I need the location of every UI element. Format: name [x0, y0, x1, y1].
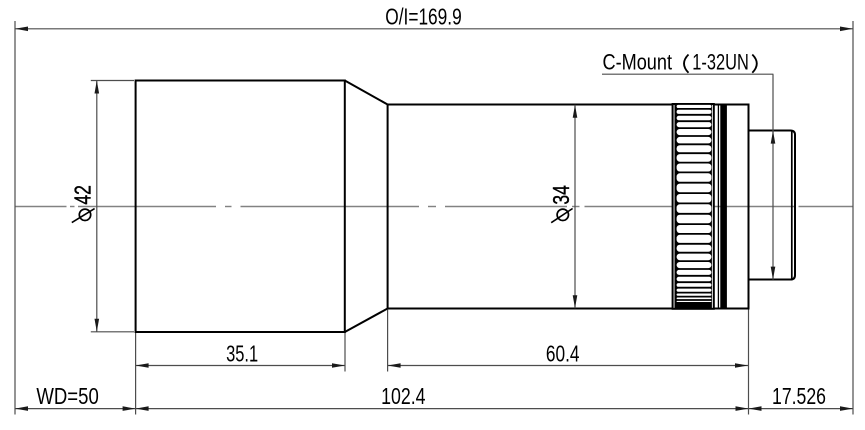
svg-text:17.526: 17.526	[772, 383, 826, 409]
svg-text:35.1: 35.1	[226, 340, 258, 366]
svg-text:102.4: 102.4	[381, 383, 426, 409]
svg-text:42: 42	[70, 185, 96, 205]
svg-text:O/I=169.9: O/I=169.9	[385, 4, 461, 30]
svg-text:1-32UN: 1-32UN	[692, 49, 749, 74]
svg-text:34: 34	[548, 185, 574, 205]
svg-text:60.4: 60.4	[546, 340, 580, 366]
svg-text:C-Mount: C-Mount	[603, 49, 673, 74]
svg-text:WD=50: WD=50	[36, 383, 98, 409]
